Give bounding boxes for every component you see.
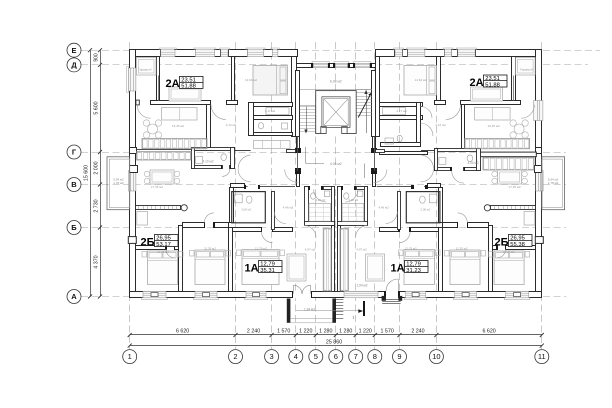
svg-text:12,79: 12,79 — [406, 262, 421, 268]
svg-text:4,46 м2: 4,46 м2 — [378, 206, 389, 210]
svg-text:Гардероб: Гардероб — [138, 68, 151, 72]
svg-text:6 620: 6 620 — [482, 329, 495, 335]
svg-text:1,78 м2: 1,78 м2 — [113, 181, 124, 185]
svg-text:Д: Д — [71, 61, 77, 70]
svg-text:2Б: 2Б — [495, 236, 509, 248]
svg-text:12,79 м2: 12,79 м2 — [255, 247, 267, 251]
svg-text:2 730: 2 730 — [94, 199, 100, 212]
svg-text:2Б: 2Б — [141, 236, 155, 248]
svg-text:4,17 м2: 4,17 м2 — [265, 109, 276, 113]
svg-text:2 000: 2 000 — [94, 161, 100, 174]
svg-text:4: 4 — [294, 352, 298, 361]
svg-text:53,17: 53,17 — [156, 242, 171, 248]
svg-text:4,12 м2: 4,12 м2 — [435, 123, 446, 127]
svg-text:2 240: 2 240 — [411, 329, 424, 335]
svg-text:15 600: 15 600 — [84, 165, 90, 181]
svg-text:26,95: 26,95 — [510, 236, 525, 242]
svg-text:8: 8 — [373, 352, 377, 361]
svg-text:5 600: 5 600 — [94, 101, 100, 114]
svg-text:4,00 м2: 4,00 м2 — [467, 161, 478, 165]
svg-text:Г: Г — [72, 148, 77, 157]
svg-text:31,23: 31,23 — [406, 268, 421, 274]
svg-text:3,98 м2: 3,98 м2 — [315, 198, 325, 202]
svg-text:23,51: 23,51 — [181, 78, 196, 84]
svg-text:В: В — [71, 180, 77, 189]
svg-text:12,79: 12,79 — [260, 262, 275, 268]
svg-text:7: 7 — [354, 352, 358, 361]
svg-text:4,10 м2: 4,10 м2 — [202, 160, 213, 164]
svg-text:51,88: 51,88 — [181, 84, 196, 90]
svg-text:4,12 м2: 4,12 м2 — [226, 123, 237, 127]
svg-text:35,31: 35,31 — [260, 268, 275, 274]
svg-text:4,46 м2: 4,46 м2 — [283, 206, 294, 210]
svg-text:900: 900 — [94, 53, 100, 62]
svg-text:25 860: 25 860 — [326, 339, 342, 345]
svg-text:1,94 м2: 1,94 м2 — [304, 308, 315, 312]
svg-text:6 620: 6 620 — [176, 329, 189, 335]
svg-text:11,35 м2: 11,35 м2 — [456, 247, 468, 251]
svg-text:14,94 м2: 14,94 м2 — [415, 78, 427, 82]
svg-text:1 220: 1 220 — [359, 329, 372, 335]
svg-text:55,38: 55,38 — [510, 242, 525, 248]
svg-text:1А: 1А — [391, 262, 405, 274]
svg-text:1 280: 1 280 — [319, 329, 332, 335]
svg-text:4 370: 4 370 — [94, 255, 100, 268]
svg-text:4,97 м2: 4,97 м2 — [305, 248, 316, 252]
svg-text:1 570: 1 570 — [277, 329, 290, 335]
svg-text:5: 5 — [314, 352, 318, 361]
svg-text:Б: Б — [71, 223, 77, 232]
svg-text:Е: Е — [71, 46, 76, 55]
svg-text:А: А — [71, 292, 77, 301]
svg-text:1 570: 1 570 — [381, 329, 394, 335]
svg-text:1: 1 — [353, 315, 355, 319]
svg-text:2 240: 2 240 — [247, 329, 260, 335]
svg-text:17,35 м2: 17,35 м2 — [509, 185, 521, 189]
svg-text:14,94 м2: 14,94 м2 — [245, 78, 257, 82]
svg-text:1А: 1А — [245, 262, 259, 274]
svg-text:1 280: 1 280 — [339, 329, 352, 335]
svg-text:4,06 м2: 4,06 м2 — [330, 162, 342, 166]
svg-text:9: 9 — [397, 352, 401, 361]
svg-text:2А: 2А — [166, 78, 180, 90]
svg-text:Гардероб: Гардероб — [520, 68, 533, 72]
svg-text:17,35 м2: 17,35 м2 — [151, 185, 163, 189]
svg-text:11: 11 — [538, 352, 546, 361]
svg-text:2А: 2А — [470, 77, 484, 89]
svg-text:1,94 м2: 1,94 м2 — [356, 284, 367, 288]
svg-text:2,08 м2: 2,08 м2 — [421, 208, 431, 212]
svg-text:2: 2 — [233, 352, 237, 361]
svg-text:3: 3 — [270, 352, 274, 361]
svg-text:11,98 м2: 11,98 м2 — [503, 250, 515, 254]
svg-text:6: 6 — [334, 352, 338, 361]
svg-text:11,35 м2: 11,35 м2 — [204, 247, 216, 251]
svg-text:12,79 м2: 12,79 м2 — [405, 247, 417, 251]
svg-text:1,78 м2: 1,78 м2 — [548, 181, 559, 185]
svg-text:4,17 м2: 4,17 м2 — [396, 109, 407, 113]
svg-text:4,97 м2: 4,97 м2 — [356, 248, 367, 252]
svg-text:1: 1 — [128, 352, 132, 361]
svg-text:51,88: 51,88 — [485, 82, 500, 88]
svg-text:6,08 м2: 6,08 м2 — [330, 80, 342, 84]
svg-text:26,95: 26,95 — [156, 236, 171, 242]
svg-text:16,45 м2: 16,45 м2 — [172, 124, 184, 128]
svg-text:10: 10 — [432, 352, 440, 361]
svg-text:23,51: 23,51 — [485, 76, 500, 82]
svg-text:1 220: 1 220 — [299, 329, 312, 335]
svg-text:2,08 м2: 2,08 м2 — [241, 208, 251, 212]
svg-text:11,98 м2: 11,98 м2 — [157, 250, 169, 254]
svg-text:16,45 м2: 16,45 м2 — [488, 124, 500, 128]
